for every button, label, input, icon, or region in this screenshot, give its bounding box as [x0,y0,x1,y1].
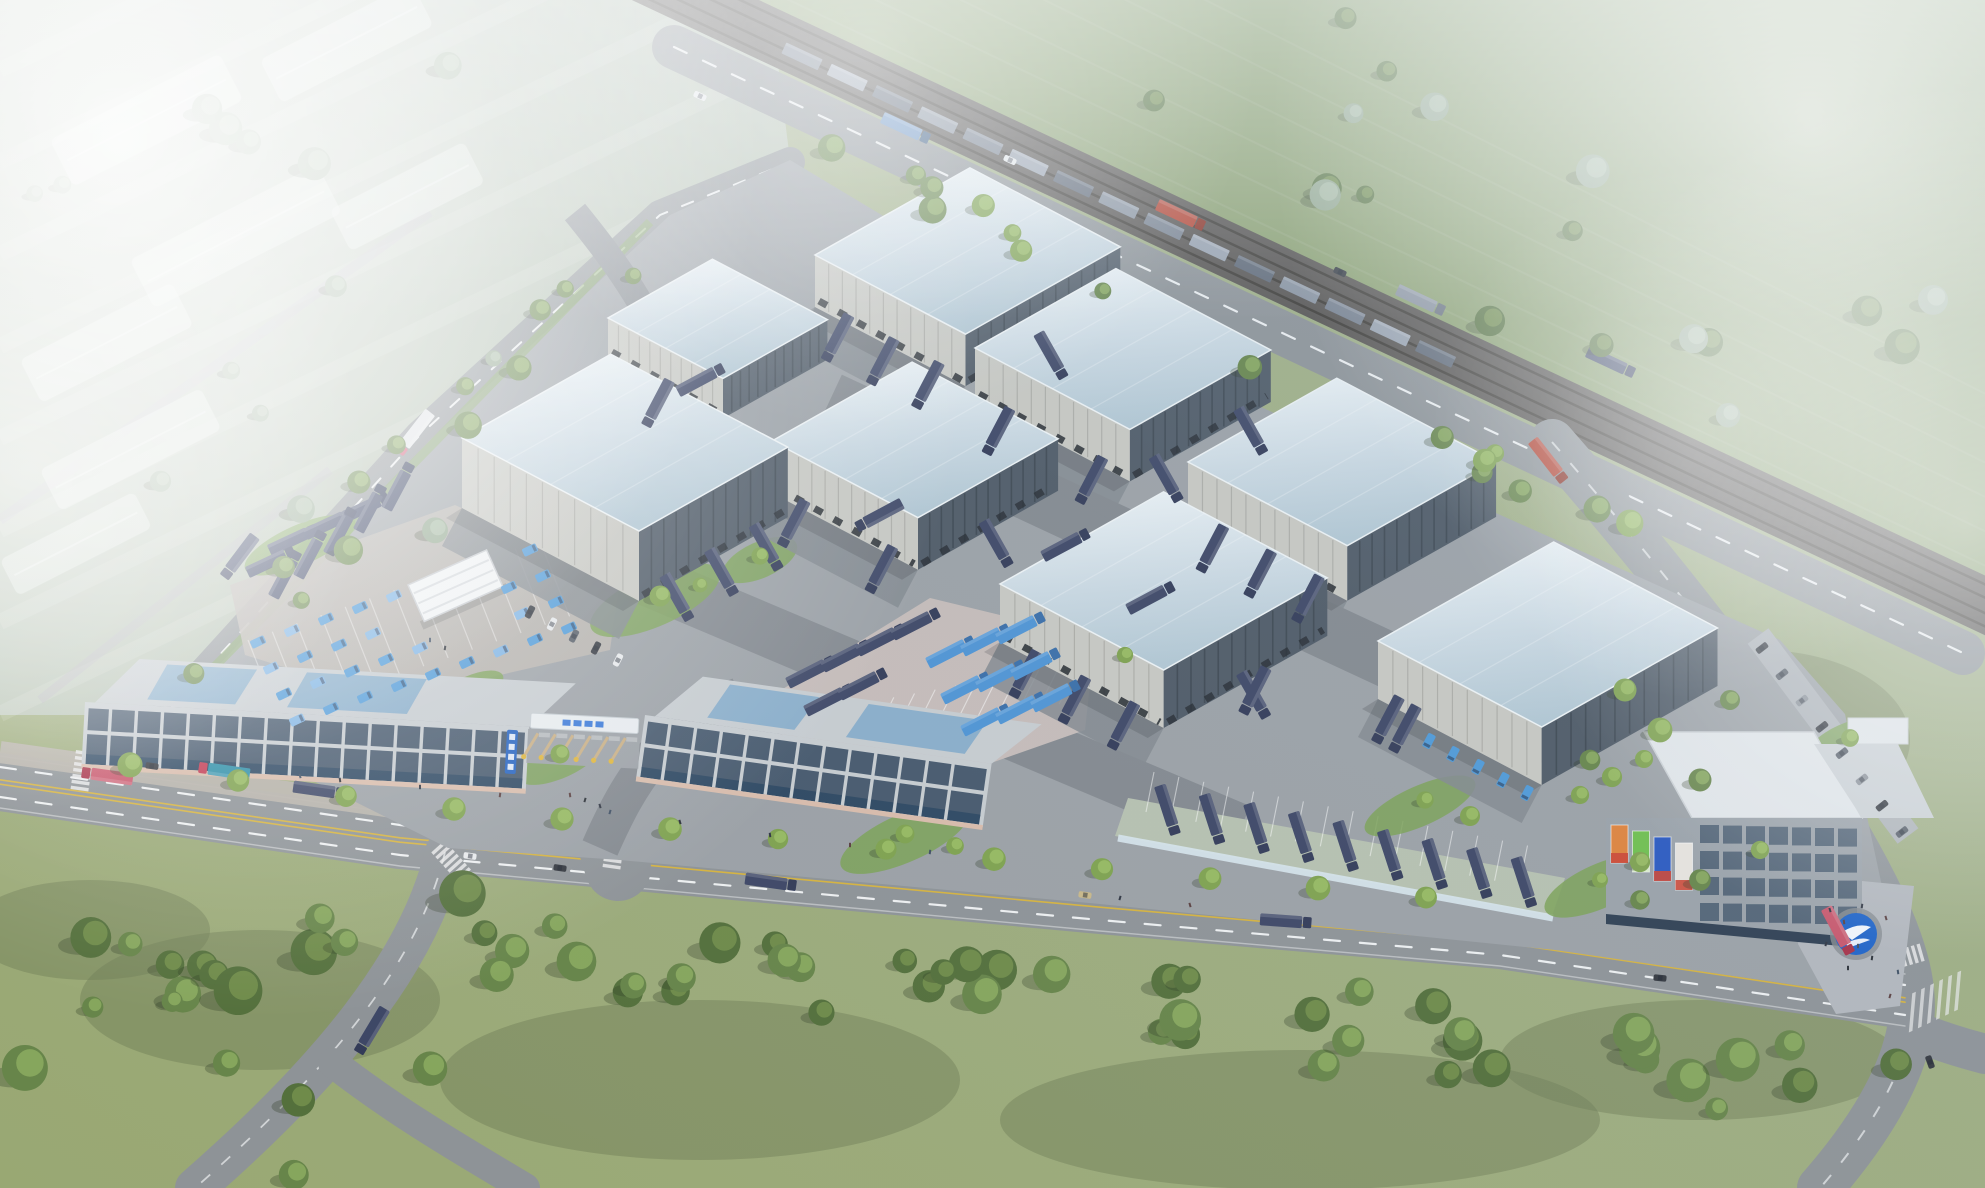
layer-fog [0,0,1985,1188]
aerial-render-stage [0,0,1985,1188]
fog-cloud [1430,160,1970,700]
aerial-render-image [0,0,1985,1188]
